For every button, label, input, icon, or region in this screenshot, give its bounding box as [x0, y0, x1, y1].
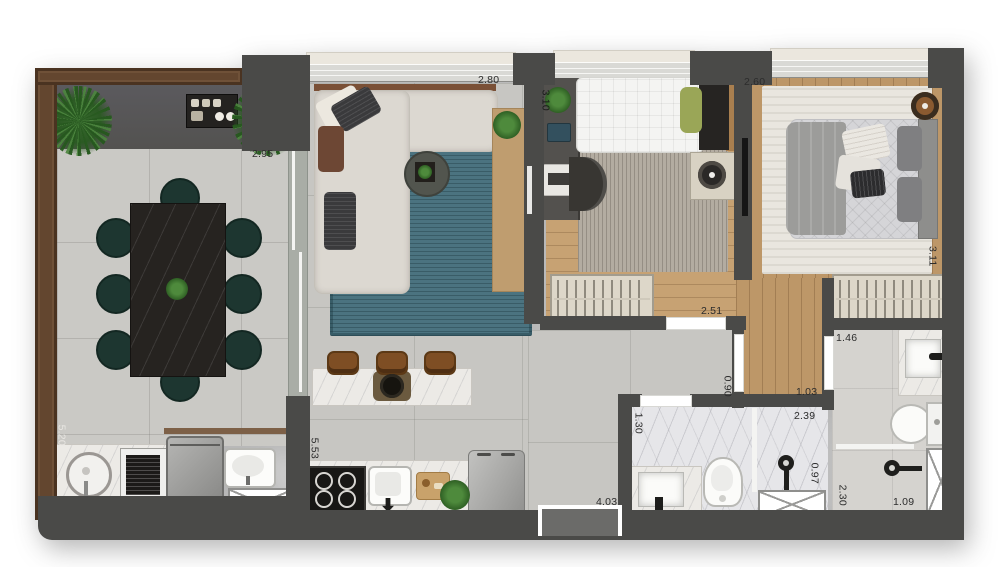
- outdoor-sink-icon: [66, 452, 112, 498]
- shower-glass-partition: [752, 408, 757, 492]
- bar-stool-icon: [327, 351, 359, 375]
- fridge-handle: [501, 453, 515, 456]
- dim-bathroom-door: 1.30: [633, 406, 644, 440]
- burner: [338, 472, 356, 490]
- wardrobe-rail: [554, 298, 650, 300]
- toilet-icon: [703, 457, 743, 507]
- kitchen-plant-icon: [440, 480, 470, 510]
- dim-hall-door: 0.90: [722, 369, 733, 403]
- wardrobe-icon: [832, 274, 950, 324]
- dim-ensuite-shower: 1.09: [893, 497, 914, 508]
- grill-appliance-icon: [120, 448, 168, 502]
- cooktop-icon: [308, 466, 366, 512]
- wall: [288, 510, 964, 540]
- entrance-door-icon: [538, 505, 622, 536]
- shower-dot: [889, 465, 895, 471]
- fridge-handle: [477, 453, 491, 456]
- toilet-seat: [711, 465, 733, 491]
- entrance-door-slab: [542, 509, 618, 536]
- burner: [338, 490, 356, 508]
- washer-lid-line: [170, 444, 220, 446]
- shower-arm: [898, 466, 922, 471]
- wall: [942, 72, 964, 540]
- sink-faucet: [84, 481, 88, 497]
- dim-kitchen-width: 4.03: [596, 497, 617, 508]
- bed-pillow-gray: [897, 126, 922, 171]
- toilet-flush: [719, 495, 726, 502]
- dim-ensuite-depth: 2.30: [837, 478, 848, 512]
- dining-chair-icon: [222, 274, 262, 314]
- coffee-table-plant-icon: [418, 165, 432, 179]
- burner: [315, 472, 333, 490]
- bbq-plate: [213, 99, 221, 107]
- dim-bedroom2-width: 2.60: [744, 77, 765, 88]
- laundry-counter-edge: [164, 428, 292, 434]
- burner: [315, 490, 333, 508]
- wall: [618, 394, 632, 518]
- toilet-flush: [934, 419, 940, 425]
- wall-tv-icon: [527, 166, 532, 214]
- dim-terrace-depth: 5.20: [56, 418, 67, 452]
- floor-plan-canvas: 2.95 2.80 3.10 2.60 3.11 2.51 1.46 0.90 …: [0, 0, 1000, 567]
- bathroom-door-opening: [640, 395, 692, 407]
- dim-closet-hall: 1.46: [836, 333, 857, 344]
- dining-chair-icon: [222, 330, 262, 370]
- grill-grate: [126, 455, 160, 495]
- wall: [824, 318, 948, 330]
- dim-bedroom1-width: 2.51: [701, 306, 722, 317]
- bbq-plate: [202, 99, 210, 107]
- bed-pillow-dark: [850, 168, 887, 198]
- terrace-planter-frame-left: [35, 68, 57, 520]
- table-plant-icon: [166, 278, 188, 300]
- sink-drain: [82, 467, 90, 475]
- nightstand-lamp-icon: [698, 161, 726, 189]
- shower-head-icon: [778, 455, 794, 471]
- dim-bedroom2-depth: 3.11: [927, 239, 938, 273]
- kitchen-floor-lower: [528, 330, 632, 512]
- tub-basin: [232, 455, 264, 477]
- apartment-floor-plan: 2.95 2.80 3.10 2.60 3.11 2.51 1.46 0.90 …: [0, 0, 1000, 567]
- wall-tv-icon: [742, 138, 748, 216]
- wall: [286, 396, 310, 512]
- console-plant-icon: [493, 111, 521, 139]
- dim-shower-width: 0.97: [809, 456, 820, 490]
- dim-kitchen-depth: 5.53: [309, 431, 320, 465]
- bbq-dish: [215, 112, 224, 121]
- bed-pillow-green: [680, 87, 702, 133]
- dining-chair-icon: [222, 218, 262, 258]
- lamp-dot: [709, 172, 715, 178]
- shower-head-icon: [884, 460, 900, 476]
- sink-basin: [375, 472, 401, 496]
- side-table-dot: [922, 103, 928, 109]
- bbq-tray: [191, 111, 203, 121]
- desk-laptop-icon: [547, 123, 571, 142]
- bedroom1-door-opening: [666, 317, 726, 330]
- bed-headboard: [699, 80, 729, 150]
- washing-machine-icon: [166, 436, 224, 502]
- terrace-planter-frame-top: [35, 68, 243, 85]
- bbq-grill-icon: [186, 94, 238, 128]
- hall-door-opening: [734, 334, 744, 392]
- shower-dot: [783, 460, 789, 466]
- tub-faucet: [246, 476, 250, 485]
- dim-living-width: 2.80: [478, 75, 499, 86]
- dim-bathroom-width: 2.39: [794, 411, 815, 422]
- ensuite-door-opening: [824, 336, 834, 390]
- wardrobe-rail: [836, 298, 946, 300]
- sofa-pillow: [318, 126, 344, 172]
- wall: [540, 316, 666, 330]
- island-cooktop-icon: [380, 374, 404, 398]
- bedroom2-window: [770, 60, 932, 78]
- refrigerator-icon: [468, 450, 525, 513]
- laundry-tub-icon: [224, 448, 276, 488]
- dim-hall-width: 1.03: [796, 387, 817, 398]
- dim-terrace-opening: 2.95: [252, 149, 273, 160]
- bar-stool-icon: [424, 351, 456, 375]
- dim-living-depth: 3.10: [540, 83, 551, 117]
- side-table-icon: [911, 92, 939, 120]
- printer-slot: [548, 173, 570, 185]
- shower-glass-partition: [836, 444, 914, 449]
- wall: [242, 55, 310, 151]
- bbq-plate: [191, 99, 199, 107]
- shower-arm: [784, 470, 789, 492]
- wall: [38, 496, 302, 540]
- sofa-pillow: [324, 192, 356, 250]
- board-item: [422, 479, 430, 487]
- bed-pillow-gray: [897, 177, 922, 222]
- wall: [286, 78, 310, 102]
- bar-stool-icon: [376, 351, 408, 375]
- sliding-door-leaf: [299, 252, 302, 392]
